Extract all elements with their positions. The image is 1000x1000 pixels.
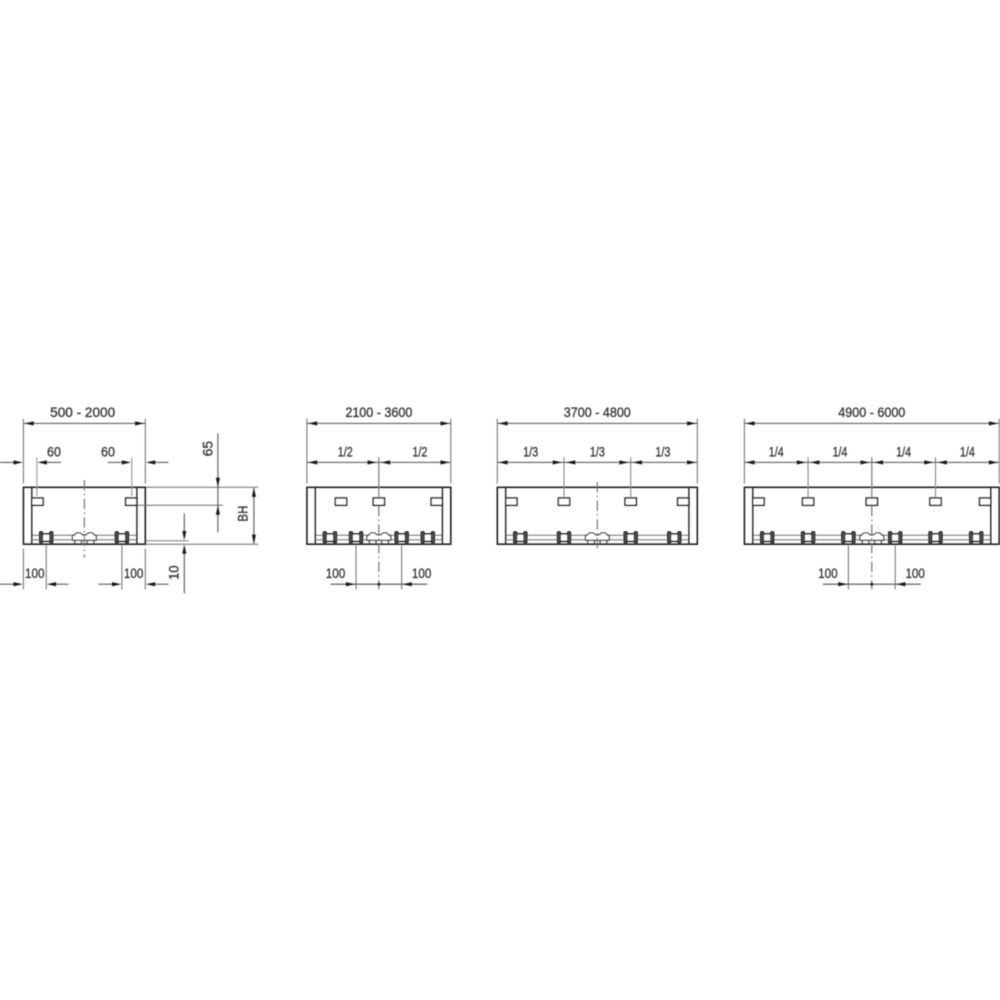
svg-text:1/3: 1/3 xyxy=(590,445,605,460)
svg-text:65: 65 xyxy=(200,441,215,457)
svg-text:100: 100 xyxy=(905,566,925,581)
svg-text:100: 100 xyxy=(818,566,838,581)
svg-text:100: 100 xyxy=(124,566,144,581)
svg-text:500 - 2000: 500 - 2000 xyxy=(50,405,115,420)
svg-text:1/4: 1/4 xyxy=(960,445,975,460)
svg-text:1/4: 1/4 xyxy=(896,445,911,460)
svg-text:60: 60 xyxy=(47,445,61,460)
svg-text:2100 - 3600: 2100 - 3600 xyxy=(345,405,412,420)
svg-text:1/4: 1/4 xyxy=(769,445,784,460)
svg-text:100: 100 xyxy=(326,566,346,581)
svg-text:100: 100 xyxy=(25,566,45,581)
svg-text:1/3: 1/3 xyxy=(523,445,538,460)
svg-text:60: 60 xyxy=(101,445,115,460)
svg-text:3700 - 4800: 3700 - 4800 xyxy=(564,405,631,420)
svg-text:10: 10 xyxy=(167,565,182,580)
svg-text:4900 - 6000: 4900 - 6000 xyxy=(838,405,905,420)
svg-text:1/2: 1/2 xyxy=(338,445,353,460)
svg-text:1/4: 1/4 xyxy=(832,445,847,460)
svg-text:1/2: 1/2 xyxy=(412,445,427,460)
svg-text:BH: BH xyxy=(236,506,251,522)
svg-text:100: 100 xyxy=(412,566,432,581)
svg-text:1/3: 1/3 xyxy=(655,445,670,460)
